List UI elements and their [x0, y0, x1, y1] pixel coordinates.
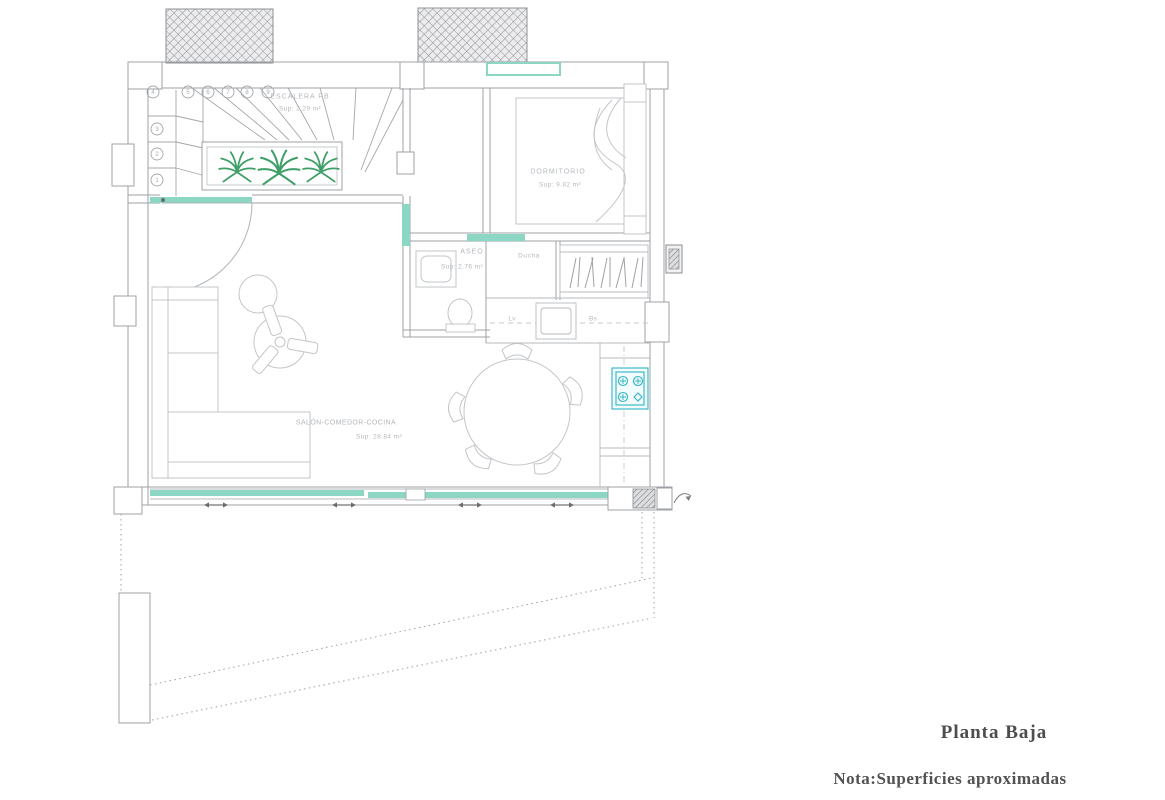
svg-text:6: 6 — [206, 90, 210, 96]
escalera-label: ESCALERA PB — [270, 94, 329, 101]
svg-text:5: 5 — [186, 90, 190, 96]
swing-arrow-icon — [686, 496, 692, 501]
living-furniture — [152, 275, 586, 479]
dining-table — [447, 344, 586, 480]
aseo-area: Sup: 2.76 m² — [441, 264, 483, 271]
corner-detail — [608, 487, 691, 510]
site-boundary — [121, 512, 654, 720]
dormitorio-label: DORMITORIO — [530, 169, 585, 176]
floor-plan-page: 1 2 3 4 5 6 7 8 9 — [0, 0, 1165, 800]
escalera-area: Sup: 2.29 m² — [279, 106, 321, 113]
svg-text:7: 7 — [226, 90, 230, 96]
salon-area: Sup: 28.84 m² — [356, 434, 402, 441]
entry-door — [162, 203, 252, 293]
toilet-icon — [448, 299, 472, 327]
svg-text:3: 3 — [155, 127, 159, 133]
ducha-label: Ducha — [518, 253, 540, 260]
svg-text:2: 2 — [155, 152, 159, 158]
svg-text:1: 1 — [155, 178, 159, 184]
fan-chair — [251, 304, 318, 374]
floor-plan-canvas: 1 2 3 4 5 6 7 8 9 — [0, 0, 1165, 800]
stove-icon — [612, 368, 648, 409]
sofa — [152, 287, 310, 478]
lv-label: Lv — [508, 316, 515, 323]
dormitorio-area: Sup: 9.82 m² — [539, 182, 581, 189]
bed — [516, 84, 646, 234]
aseo-label: ASEO — [460, 249, 483, 256]
salon-label: SALÓN-COMEDOR-COCINA — [296, 420, 396, 427]
plan-note: Nota:Superficies aproximadas — [833, 769, 1066, 789]
plan-title: Planta Baja — [941, 722, 1048, 744]
svg-text:8: 8 — [245, 90, 249, 96]
planter — [202, 142, 342, 190]
utility-meter-icon — [666, 245, 682, 273]
hatched-wall-sections — [166, 8, 527, 63]
lower-wall-segment — [119, 593, 150, 723]
wardrobe — [560, 245, 648, 298]
bs-label: Bs — [589, 316, 597, 323]
svg-text:4: 4 — [151, 90, 155, 96]
